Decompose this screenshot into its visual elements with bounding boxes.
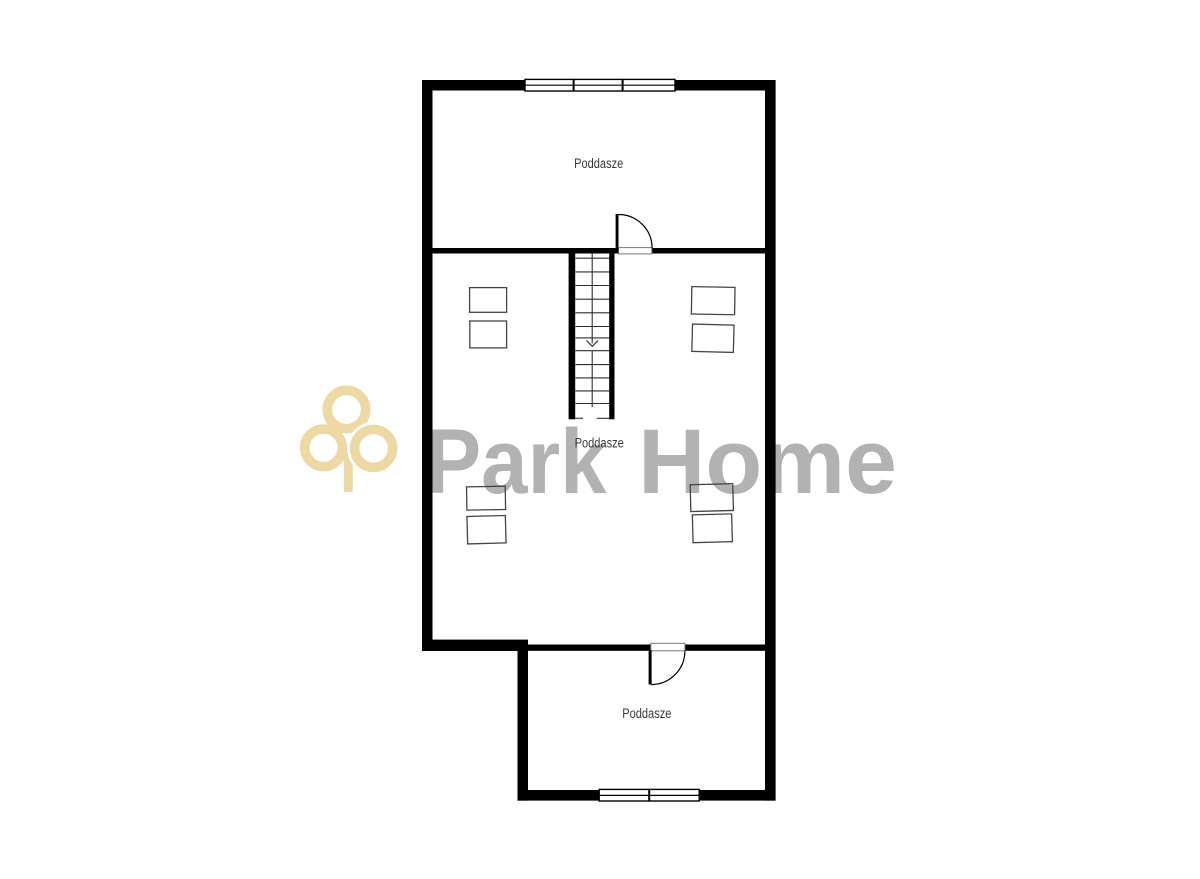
svg-text:Park: Park bbox=[426, 411, 608, 513]
svg-text:Poddasze: Poddasze bbox=[622, 705, 671, 722]
svg-text:Poddasze: Poddasze bbox=[574, 155, 623, 172]
svg-text:Poddasze: Poddasze bbox=[575, 434, 624, 451]
